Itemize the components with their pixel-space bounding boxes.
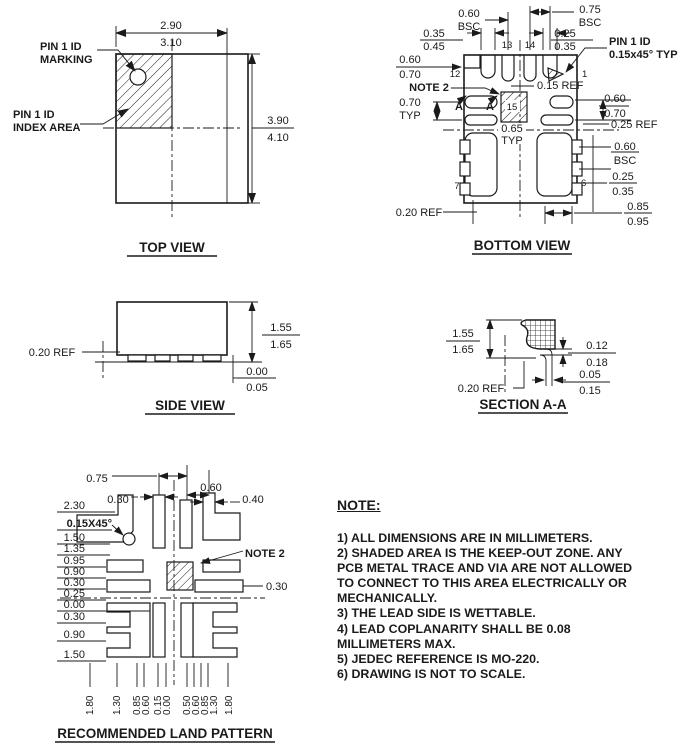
note-line: 6) DRAWING IS NOT TO SCALE.	[337, 667, 689, 682]
dim-label: 0.00	[246, 366, 267, 378]
pin-number-15: 15	[507, 102, 518, 113]
dim-label: 0.70	[399, 97, 420, 109]
view-title: RECOMMENDED LAND PATTERN	[57, 726, 273, 741]
pin1-index-label: INDEX AREA	[13, 122, 80, 134]
top-view-drawing: 2.90 3.10 3.90 4.10 PIN 1 ID MARKING PIN…	[0, 0, 340, 270]
dim-label: 0.95	[627, 216, 648, 228]
land-pattern-drawing: 0.75 0.30 0.60 0.40 2.30 0.15X45° 1.50 1…	[0, 445, 340, 754]
dim-label: 1.55	[452, 328, 473, 340]
note-line: TO CONNECT TO THIS AREA ELECTRICALLY OR	[337, 576, 689, 591]
bottom-dim-labels: 1.80 1.30 0.85 0.60 0.15 0.00 0.50 0.60 …	[85, 695, 235, 715]
dim-label: 0.25	[612, 171, 633, 183]
pin1-id-label: PIN 1 ID	[609, 36, 651, 48]
bottom-view-drawing: 0.60 BSC 0.75 BSC 0.35 0.45 0.25 0.35 PI…	[385, 0, 692, 265]
svg-text:1.30: 1.30	[112, 695, 123, 715]
note-line: 2) SHADED AREA IS THE KEEP-OUT ZONE. ANY	[337, 546, 689, 561]
dim-label: 0.30	[64, 611, 85, 623]
dim-label: 0.20 REF	[396, 207, 443, 219]
pin1-marking-circle	[130, 69, 146, 85]
dim-label: BSC	[614, 155, 637, 167]
dim-label: 0.12	[586, 340, 607, 352]
dim-label: 1.65	[452, 344, 473, 356]
view-title: BOTTOM VIEW	[474, 238, 571, 253]
dim-label: 0.20 REF	[29, 347, 76, 359]
notes-block: NOTE: 1) ALL DIMENSIONS ARE IN MILLIMETE…	[337, 497, 689, 682]
dim-label: 0.60	[604, 93, 625, 105]
dim-label: 0.75	[579, 4, 600, 16]
package-body-side	[117, 302, 227, 355]
dim-label: 0.05	[246, 382, 267, 394]
dim-label: 0.15 REF	[537, 80, 584, 92]
package-mechanical-drawing: 2.90 3.10 3.90 4.10 PIN 1 ID MARKING PIN…	[0, 0, 692, 754]
dim-label: TYP	[501, 135, 522, 147]
dim-label: 0.40	[242, 494, 263, 506]
side-view-drawing: 0.20 REF 1.55 1.65 0.00 0.05 SIDE VIEW	[0, 275, 350, 420]
note-line: 5) JEDEC REFERENCE IS MO-220.	[337, 652, 689, 667]
dim-label: 0.30	[266, 581, 287, 593]
svg-text:1.80: 1.80	[224, 695, 235, 715]
dim-label: 2.30	[64, 500, 85, 512]
dim-label: TYP	[399, 110, 420, 122]
pin-number-12: 12	[450, 69, 461, 80]
dim-label: 4.10	[267, 132, 288, 144]
note-line: PCB METAL TRACE AND VIA ARE NOT ALLOWED	[337, 561, 689, 576]
dim-label: 0.45	[423, 41, 444, 53]
dim-label: 0.75	[86, 473, 107, 485]
dim-label: 0.30	[107, 494, 128, 506]
dim-label: BSC	[579, 17, 602, 29]
dim-label: 0.60	[200, 482, 221, 494]
pin1-index-hatch-area	[116, 54, 172, 128]
dim-label: 3.10	[160, 37, 181, 49]
side-lead-pads	[128, 355, 221, 361]
dim-label: 1.35	[64, 543, 85, 555]
svg-text:0.60: 0.60	[141, 695, 152, 715]
note-line: 4) LEAD COPLANARITY SHALL BE 0.08	[337, 622, 689, 637]
pin1-id-label: 0.15x45° TYP	[609, 49, 678, 61]
dim-label: 0.85	[627, 201, 648, 213]
dim-label: 0.35	[612, 186, 633, 198]
section-aa-drawing: 1.55 1.65 0.12 0.18 0.05 0.15 0.20 REF S…	[420, 285, 692, 420]
dim-label: 0.60	[458, 8, 479, 20]
chamfer-label: 0.15X45°	[67, 518, 112, 530]
dim-label: 0.60	[614, 141, 635, 153]
pin-number-7: 7	[454, 181, 459, 192]
svg-text:1.30: 1.30	[209, 695, 220, 715]
dim-label: 0.35	[554, 41, 575, 53]
dim-label: 0.65	[501, 123, 522, 135]
dim-label: 0.35	[423, 28, 444, 40]
dim-label: 0.25	[554, 28, 575, 40]
section-mark-a: A	[486, 101, 494, 113]
dim-label: 1.55	[270, 322, 291, 334]
note-line: 1) ALL DIMENSIONS ARE IN MILLIMETERS.	[337, 531, 689, 546]
dim-label: 0.20 REF	[458, 383, 505, 395]
section-mark-a: A	[455, 101, 463, 113]
pin1-marking-label: PIN 1 ID	[40, 41, 82, 53]
svg-text:0.00: 0.00	[162, 695, 173, 715]
dim-label: 1.65	[270, 339, 291, 351]
chamfer-marker-circle	[123, 533, 135, 545]
keepout-zone-hatch	[167, 562, 193, 590]
dim-label: 0.05	[579, 369, 600, 381]
note-line: MILLIMETERS MAX.	[337, 637, 689, 652]
view-title: SECTION A-A	[479, 397, 566, 412]
note-line: 3) THE LEAD SIDE IS WETTABLE.	[337, 606, 689, 621]
view-title: TOP VIEW	[139, 240, 205, 255]
dim-label: 0.18	[586, 357, 607, 369]
dim-label: 2.90	[160, 20, 181, 32]
dim-label: 0.70	[399, 69, 420, 81]
pin-number-6: 6	[581, 178, 586, 189]
pin1-marking-label: MARKING	[40, 54, 93, 66]
dim-label: 0.90	[64, 629, 85, 641]
pin-number-1: 1	[582, 69, 587, 80]
dim-label: 0.15	[579, 385, 600, 397]
dim-label: 1.50	[64, 649, 85, 661]
note2-callout: NOTE 2	[245, 548, 285, 560]
note2-callout: NOTE 2	[409, 82, 449, 94]
dim-label: 0.00	[64, 599, 85, 611]
lead-cross-section-hatch	[521, 320, 555, 349]
dim-label: 3.90	[267, 115, 288, 127]
note-line: MECHANICALLY.	[337, 591, 689, 606]
lead-foot-lines	[540, 349, 572, 386]
pin-number-13: 13	[502, 40, 513, 51]
svg-text:1.80: 1.80	[85, 695, 96, 715]
dim-label: BSC	[458, 21, 481, 33]
pin1-index-label: PIN 1 ID	[13, 109, 55, 121]
notes-heading: NOTE:	[337, 497, 689, 513]
pin-number-14: 14	[525, 40, 536, 51]
view-title: SIDE VIEW	[155, 398, 225, 413]
dim-label: 0.60	[399, 54, 420, 66]
dim-label: 0.25 REF	[611, 119, 658, 131]
